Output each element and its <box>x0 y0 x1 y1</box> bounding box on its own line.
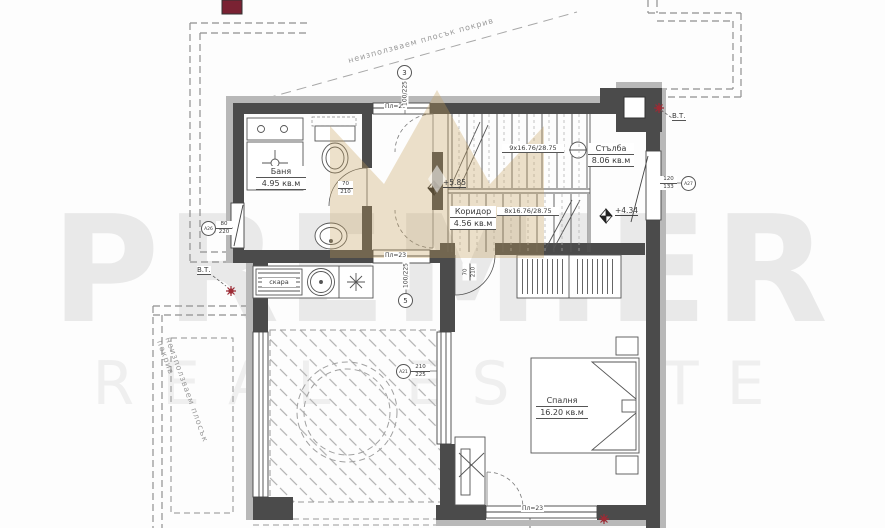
stair-flight-down-label: 8x16.76/28.75 <box>497 207 559 216</box>
sliding-door-label-kitchen: Пл=23 <box>384 252 407 259</box>
window-size-a27: 120 133 <box>660 176 677 190</box>
floor-hatch-area <box>253 330 530 528</box>
room-label-bedroom: Спалня 16.20 кв.м <box>536 395 588 419</box>
size-height: 225 <box>411 372 430 379</box>
nightstand <box>616 337 638 355</box>
vent-icon <box>226 286 236 296</box>
size-width: 80 <box>216 221 232 229</box>
size-width: 210 <box>411 364 430 372</box>
washbasin-counter <box>247 118 303 140</box>
level-marker-lower: +4.34 <box>615 206 638 216</box>
room-label-staircase: Стълба 8.06 кв.м <box>588 143 634 167</box>
room-area: 4.95 кв.м <box>256 178 306 190</box>
level-marker-upper: +5.85 <box>443 178 466 188</box>
room-label-corridor: Коридор 4.56 кв.м <box>450 206 496 230</box>
room-area: 4.56 кв.м <box>450 218 496 230</box>
window-ref-a26: А26 <box>201 221 216 236</box>
size-width: 70 <box>338 181 353 189</box>
mirror-shelf <box>312 117 356 126</box>
floorplan-drawing <box>0 0 885 528</box>
floorplan-page: PREMIER REAL ESTATE <box>0 0 885 528</box>
room-label-bathroom: Баня 4.95 кв.м <box>256 166 306 190</box>
room-name: Баня <box>256 166 306 178</box>
room-area: 16.20 кв.м <box>536 407 588 419</box>
window-size-a26: 80 220 <box>216 221 232 235</box>
nightstand <box>616 456 638 474</box>
window-ref-a21: А21 <box>396 364 411 379</box>
opening-size-5: 100/225 <box>403 262 410 290</box>
vent-icon <box>599 514 609 524</box>
opening-ref-5: 5 <box>398 293 413 308</box>
size-width: 120 <box>660 176 677 184</box>
size-height: 220 <box>216 229 232 236</box>
room-area: 8.06 кв.м <box>588 155 634 167</box>
kitchen-grill-label: скара <box>262 278 296 287</box>
room-name: Коридор <box>450 206 496 218</box>
vent-label-left: В.Т. <box>197 266 211 275</box>
chimney-block <box>222 0 242 14</box>
room-name: Стълба <box>588 143 634 155</box>
room-name: Спалня <box>536 395 588 407</box>
stair-flight-up-label: 9x16.76/28.75 <box>502 144 564 153</box>
bedroom-furniture <box>455 255 639 505</box>
opening-ref-3: 3 <box>397 65 412 80</box>
vent-label-top: В.Т. <box>672 112 686 121</box>
vent-shaft-notch <box>624 97 645 118</box>
window-size-a21: 210 225 <box>411 364 430 378</box>
window-ref-a27: А27 <box>681 176 696 191</box>
bedroom-door-size: 70 210 <box>463 264 477 281</box>
sliding-door-label-bedroom: Пл=23 <box>521 505 544 512</box>
size-height: 210 <box>470 264 477 281</box>
bath-door-size: 70 210 <box>338 181 353 195</box>
size-width: 70 <box>463 264 471 281</box>
size-height: 133 <box>660 184 677 191</box>
size-height: 210 <box>338 189 353 196</box>
opening-size-3: 100/225 <box>402 80 409 108</box>
